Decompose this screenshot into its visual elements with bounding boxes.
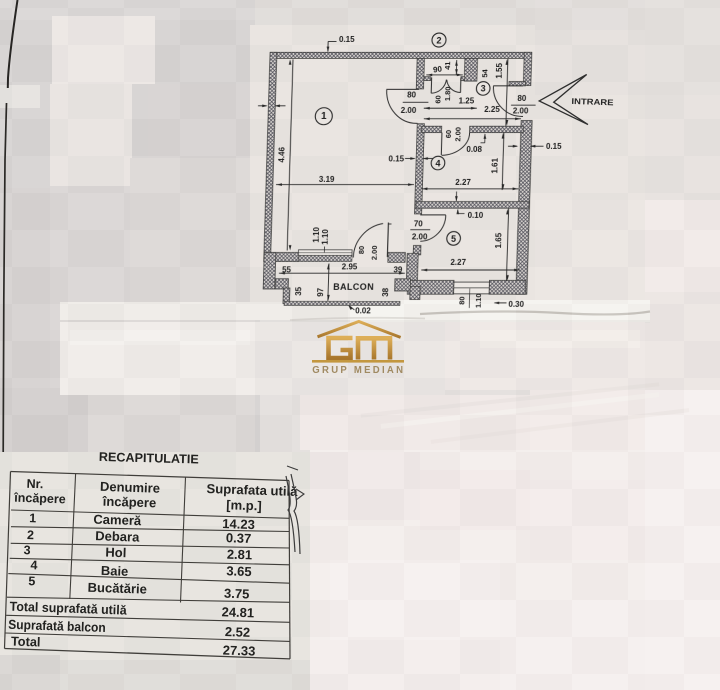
svg-text:2.27: 2.27	[450, 258, 466, 267]
svg-text:2.00: 2.00	[370, 245, 379, 260]
svg-text:INTRARE: INTRARE	[571, 96, 614, 107]
svg-text:Baie: Baie	[101, 563, 129, 579]
svg-text:5: 5	[28, 574, 35, 588]
svg-text:0.02: 0.02	[355, 307, 371, 316]
svg-text:0.15: 0.15	[388, 154, 404, 163]
svg-text:4: 4	[30, 558, 37, 572]
svg-text:Nr.: Nr.	[26, 477, 43, 492]
svg-text:2.52: 2.52	[225, 624, 251, 640]
svg-text:41: 41	[443, 62, 452, 70]
svg-text:încăpere: încăpere	[13, 491, 66, 507]
svg-text:80: 80	[357, 246, 366, 254]
svg-text:0.10: 0.10	[467, 211, 483, 220]
svg-text:0.15: 0.15	[339, 35, 355, 44]
svg-text:60: 60	[444, 130, 453, 138]
svg-text:80: 80	[517, 94, 527, 103]
svg-text:2: 2	[436, 35, 441, 45]
svg-text:Total: Total	[11, 634, 41, 650]
svg-text:2: 2	[27, 528, 34, 542]
svg-text:GRUP MEDIAN: GRUP MEDIAN	[312, 365, 405, 376]
svg-text:Cameră: Cameră	[93, 512, 142, 529]
svg-text:55: 55	[282, 265, 292, 274]
svg-text:2.25: 2.25	[484, 105, 500, 114]
svg-text:1.55: 1.55	[495, 62, 504, 78]
svg-text:1.61: 1.61	[490, 157, 499, 173]
svg-text:1.25: 1.25	[458, 97, 474, 106]
svg-text:Hol: Hol	[105, 545, 126, 561]
svg-text:3: 3	[481, 84, 486, 94]
svg-text:0.30: 0.30	[508, 300, 524, 309]
svg-text:[m.p.]: [m.p.]	[226, 497, 262, 513]
svg-text:1: 1	[321, 111, 327, 122]
svg-text:1.65: 1.65	[494, 232, 503, 248]
svg-text:3: 3	[23, 543, 30, 557]
svg-text:27.33: 27.33	[223, 643, 256, 659]
svg-text:2.00: 2.00	[453, 127, 462, 142]
svg-text:2.95: 2.95	[342, 263, 358, 272]
svg-text:3.19: 3.19	[319, 175, 335, 184]
svg-text:80: 80	[457, 296, 466, 304]
svg-text:90: 90	[433, 64, 443, 74]
svg-text:60: 60	[434, 95, 443, 103]
svg-text:RECAPITULATIE: RECAPITULATIE	[99, 450, 199, 467]
svg-text:54: 54	[480, 68, 489, 77]
svg-text:4.46: 4.46	[277, 146, 286, 162]
svg-text:1.10: 1.10	[321, 229, 330, 245]
svg-text:80: 80	[407, 91, 417, 100]
svg-text:39: 39	[393, 265, 403, 274]
svg-text:2.27: 2.27	[455, 178, 471, 187]
svg-text:5: 5	[451, 234, 456, 244]
svg-text:3.65: 3.65	[226, 563, 252, 579]
svg-text:24.81: 24.81	[221, 604, 254, 620]
svg-text:1.80: 1.80	[443, 86, 452, 101]
svg-text:Bucătărie: Bucătărie	[87, 580, 147, 597]
svg-text:2.00: 2.00	[513, 106, 529, 115]
svg-text:35: 35	[294, 286, 303, 295]
svg-text:70: 70	[414, 219, 424, 228]
svg-text:Debara: Debara	[95, 528, 140, 544]
svg-text:1.10: 1.10	[474, 293, 483, 308]
svg-text:2.81: 2.81	[227, 547, 253, 563]
svg-text:2.00: 2.00	[412, 233, 428, 242]
svg-text:0.08: 0.08	[466, 145, 482, 154]
svg-text:2.00: 2.00	[401, 106, 417, 115]
svg-text:3.75: 3.75	[224, 586, 250, 602]
svg-text:1: 1	[29, 511, 36, 525]
svg-text:0.15: 0.15	[546, 142, 562, 151]
svg-text:încăpere: încăpere	[102, 494, 157, 511]
svg-text:4: 4	[435, 158, 440, 168]
svg-text:Suprafata utilă: Suprafata utilă	[206, 481, 298, 499]
svg-text:0.37: 0.37	[226, 530, 252, 546]
svg-text:97: 97	[316, 287, 325, 296]
svg-text:BALCON: BALCON	[333, 282, 374, 292]
svg-text:38: 38	[381, 287, 390, 296]
